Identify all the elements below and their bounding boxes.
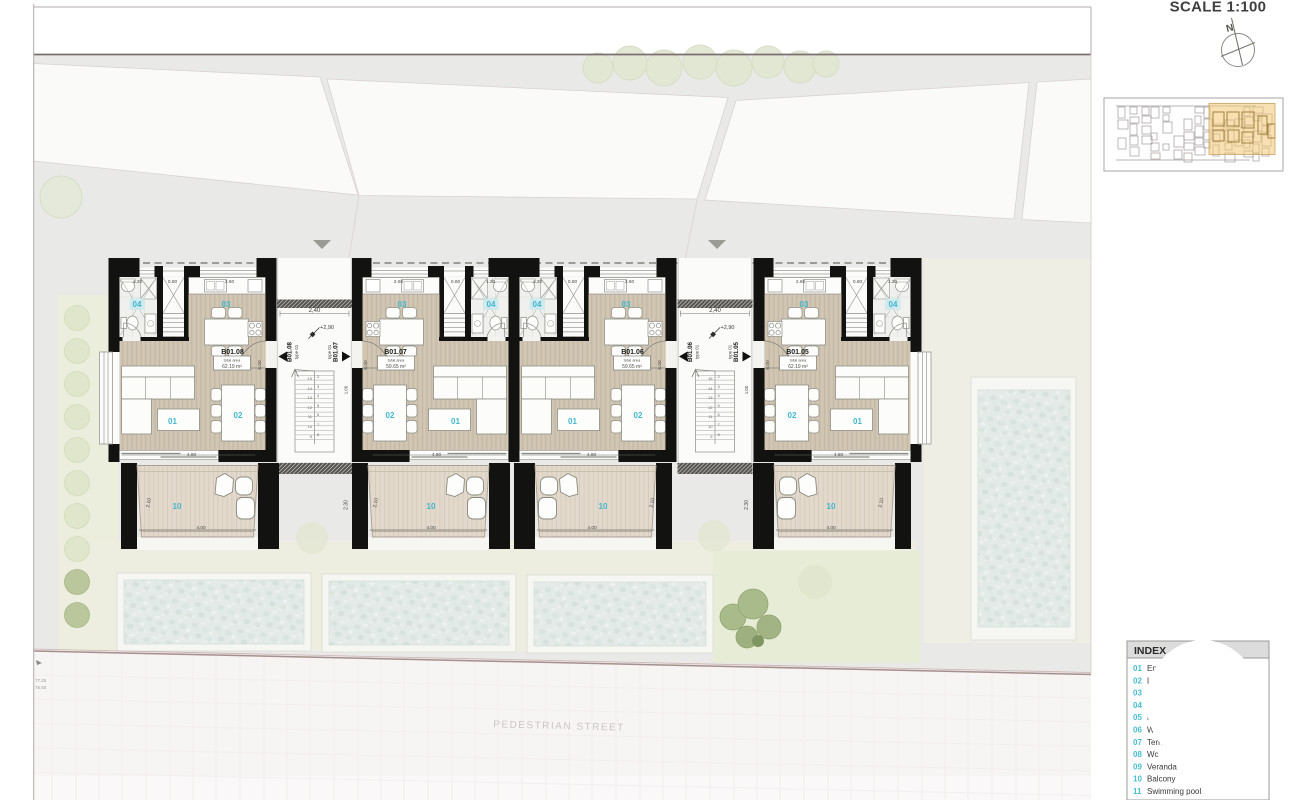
svg-text:10: 10 <box>427 502 436 511</box>
svg-text:01: 01 <box>568 417 577 426</box>
svg-text:B01.05: B01.05 <box>733 341 740 362</box>
svg-text:4.80: 4.80 <box>432 452 442 458</box>
svg-text:6.00: 6.00 <box>363 360 369 370</box>
svg-text:4.80: 4.80 <box>834 452 844 458</box>
svg-text:2.60: 2.60 <box>625 279 635 285</box>
svg-text:75.60: 75.60 <box>35 685 47 690</box>
svg-text:1.00: 1.00 <box>344 385 349 394</box>
svg-text:0.80: 0.80 <box>451 279 461 285</box>
svg-text:0.80: 0.80 <box>568 279 578 285</box>
svg-text:62.19 m²: 62.19 m² <box>788 364 808 370</box>
svg-text:03: 03 <box>622 300 631 309</box>
svg-text:11: 11 <box>1133 787 1142 796</box>
svg-text:2,40: 2,40 <box>709 308 721 314</box>
svg-text:4.00: 4.00 <box>826 525 836 531</box>
svg-text:total area: total area <box>224 358 241 363</box>
svg-text:1.00: 1.00 <box>744 385 749 394</box>
svg-text:08: 08 <box>1133 750 1142 759</box>
svg-text:01: 01 <box>853 417 862 426</box>
svg-text:01: 01 <box>451 417 460 426</box>
svg-text:02: 02 <box>1133 676 1142 685</box>
svg-text:1.20: 1.20 <box>133 279 143 285</box>
svg-text:01: 01 <box>168 417 177 426</box>
svg-text:59.65 m²: 59.65 m² <box>622 364 642 370</box>
svg-text:05: 05 <box>1133 713 1142 722</box>
svg-text:+2,90: +2,90 <box>721 325 735 331</box>
svg-text:2.30: 2.30 <box>744 500 750 510</box>
svg-text:4.00: 4.00 <box>587 525 597 531</box>
svg-text:total area: total area <box>790 358 807 363</box>
svg-text:type 01: type 01 <box>728 344 733 359</box>
svg-text:B01.07: B01.07 <box>333 341 340 362</box>
svg-text:10: 10 <box>1133 775 1142 784</box>
svg-text:03: 03 <box>222 300 231 309</box>
svg-text:type 01: type 01 <box>327 344 332 359</box>
svg-text:1.20: 1.20 <box>888 279 898 285</box>
svg-text:10: 10 <box>173 502 182 511</box>
svg-text:04: 04 <box>533 300 542 309</box>
svg-text:02: 02 <box>788 411 797 420</box>
svg-text:type 01: type 01 <box>695 344 700 359</box>
svg-text:6.00: 6.00 <box>657 360 663 370</box>
svg-text:77.25: 77.25 <box>35 678 47 683</box>
svg-text:4.00: 4.00 <box>196 525 206 531</box>
svg-text:02: 02 <box>234 411 243 420</box>
svg-text:03: 03 <box>1133 689 1142 698</box>
svg-text:06: 06 <box>1133 726 1142 735</box>
svg-text:2.60: 2.60 <box>796 279 806 285</box>
svg-text:0.80: 0.80 <box>853 279 863 285</box>
svg-text:62.19 m²: 62.19 m² <box>222 364 242 370</box>
svg-text:0.80: 0.80 <box>168 279 178 285</box>
svg-text:10: 10 <box>827 502 836 511</box>
svg-text:4.00: 4.00 <box>426 525 436 531</box>
svg-text:2.60: 2.60 <box>225 279 235 285</box>
svg-text:Wc: Wc <box>1147 750 1159 759</box>
svg-text:09: 09 <box>1133 762 1142 771</box>
svg-text:Veranda: Veranda <box>1147 762 1177 771</box>
svg-text:6.00: 6.00 <box>765 360 771 370</box>
svg-text:04: 04 <box>889 300 898 309</box>
svg-text:B01.05: B01.05 <box>786 349 809 356</box>
svg-text:B01.07: B01.07 <box>384 349 407 356</box>
svg-text:total area: total area <box>624 358 641 363</box>
svg-text:2.60: 2.60 <box>394 279 404 285</box>
svg-text:2.30: 2.30 <box>344 500 350 510</box>
svg-text:07: 07 <box>1133 738 1142 747</box>
svg-text:B01.06: B01.06 <box>687 341 694 362</box>
svg-text:03: 03 <box>800 300 809 309</box>
svg-text:Balcony: Balcony <box>1147 775 1175 784</box>
svg-text:total area: total area <box>388 358 405 363</box>
svg-text:04: 04 <box>487 300 496 309</box>
svg-text:03: 03 <box>398 300 407 309</box>
svg-text:INDEX: INDEX <box>1134 645 1166 657</box>
svg-text:type 01: type 01 <box>294 344 299 359</box>
svg-text:6.00: 6.00 <box>257 360 263 370</box>
svg-text:10: 10 <box>599 502 608 511</box>
svg-text:4.80: 4.80 <box>587 452 597 458</box>
svg-text:59.65 m²: 59.65 m² <box>386 364 406 370</box>
svg-text:04: 04 <box>133 300 142 309</box>
svg-text:01: 01 <box>1133 664 1142 673</box>
svg-text:Swimming pool: Swimming pool <box>1147 787 1201 796</box>
svg-text:B01.08: B01.08 <box>221 349 244 356</box>
svg-text:02: 02 <box>634 411 643 420</box>
svg-text:04: 04 <box>1133 701 1142 710</box>
svg-text:1.20: 1.20 <box>533 279 543 285</box>
svg-text:02: 02 <box>386 411 395 420</box>
svg-text:B01.06: B01.06 <box>621 349 644 356</box>
svg-text:2,40: 2,40 <box>309 308 321 314</box>
svg-text:1.20: 1.20 <box>486 279 496 285</box>
svg-text:B01.08: B01.08 <box>287 341 294 362</box>
svg-text:4.80: 4.80 <box>187 452 197 458</box>
svg-text:SCALE 1:100: SCALE 1:100 <box>1170 0 1267 16</box>
svg-text:+2,90: +2,90 <box>320 325 334 331</box>
